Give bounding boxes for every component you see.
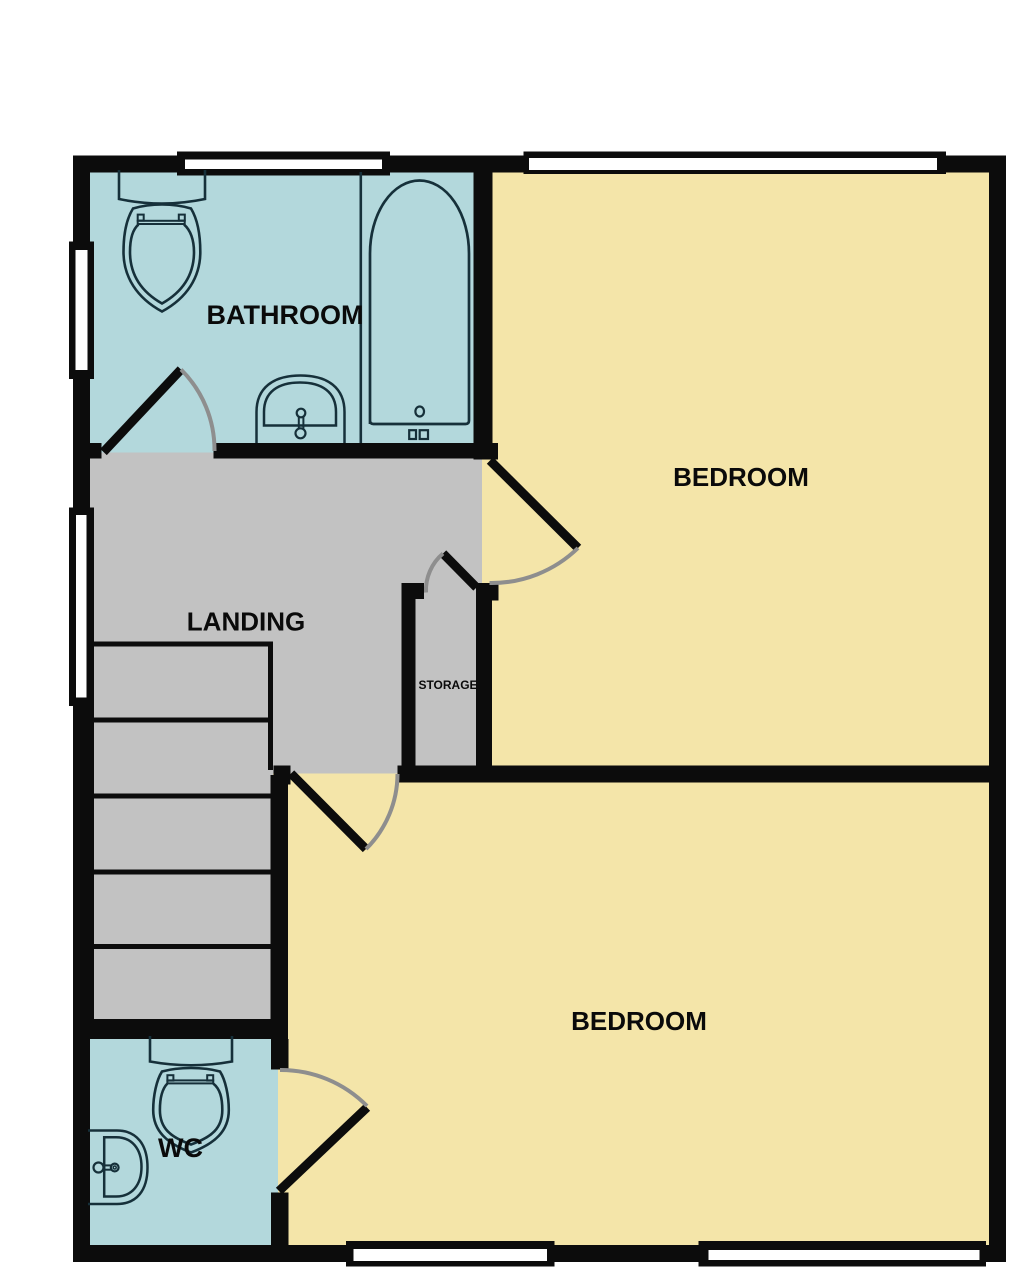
svg-text:WC: WC (158, 1133, 203, 1163)
svg-text:BEDROOM: BEDROOM (673, 462, 809, 492)
svg-text:STORAGE: STORAGE (418, 678, 477, 692)
svg-text:BEDROOM: BEDROOM (571, 1006, 707, 1036)
svg-text:LANDING: LANDING (187, 607, 305, 637)
svg-text:BATHROOM: BATHROOM (207, 300, 364, 330)
